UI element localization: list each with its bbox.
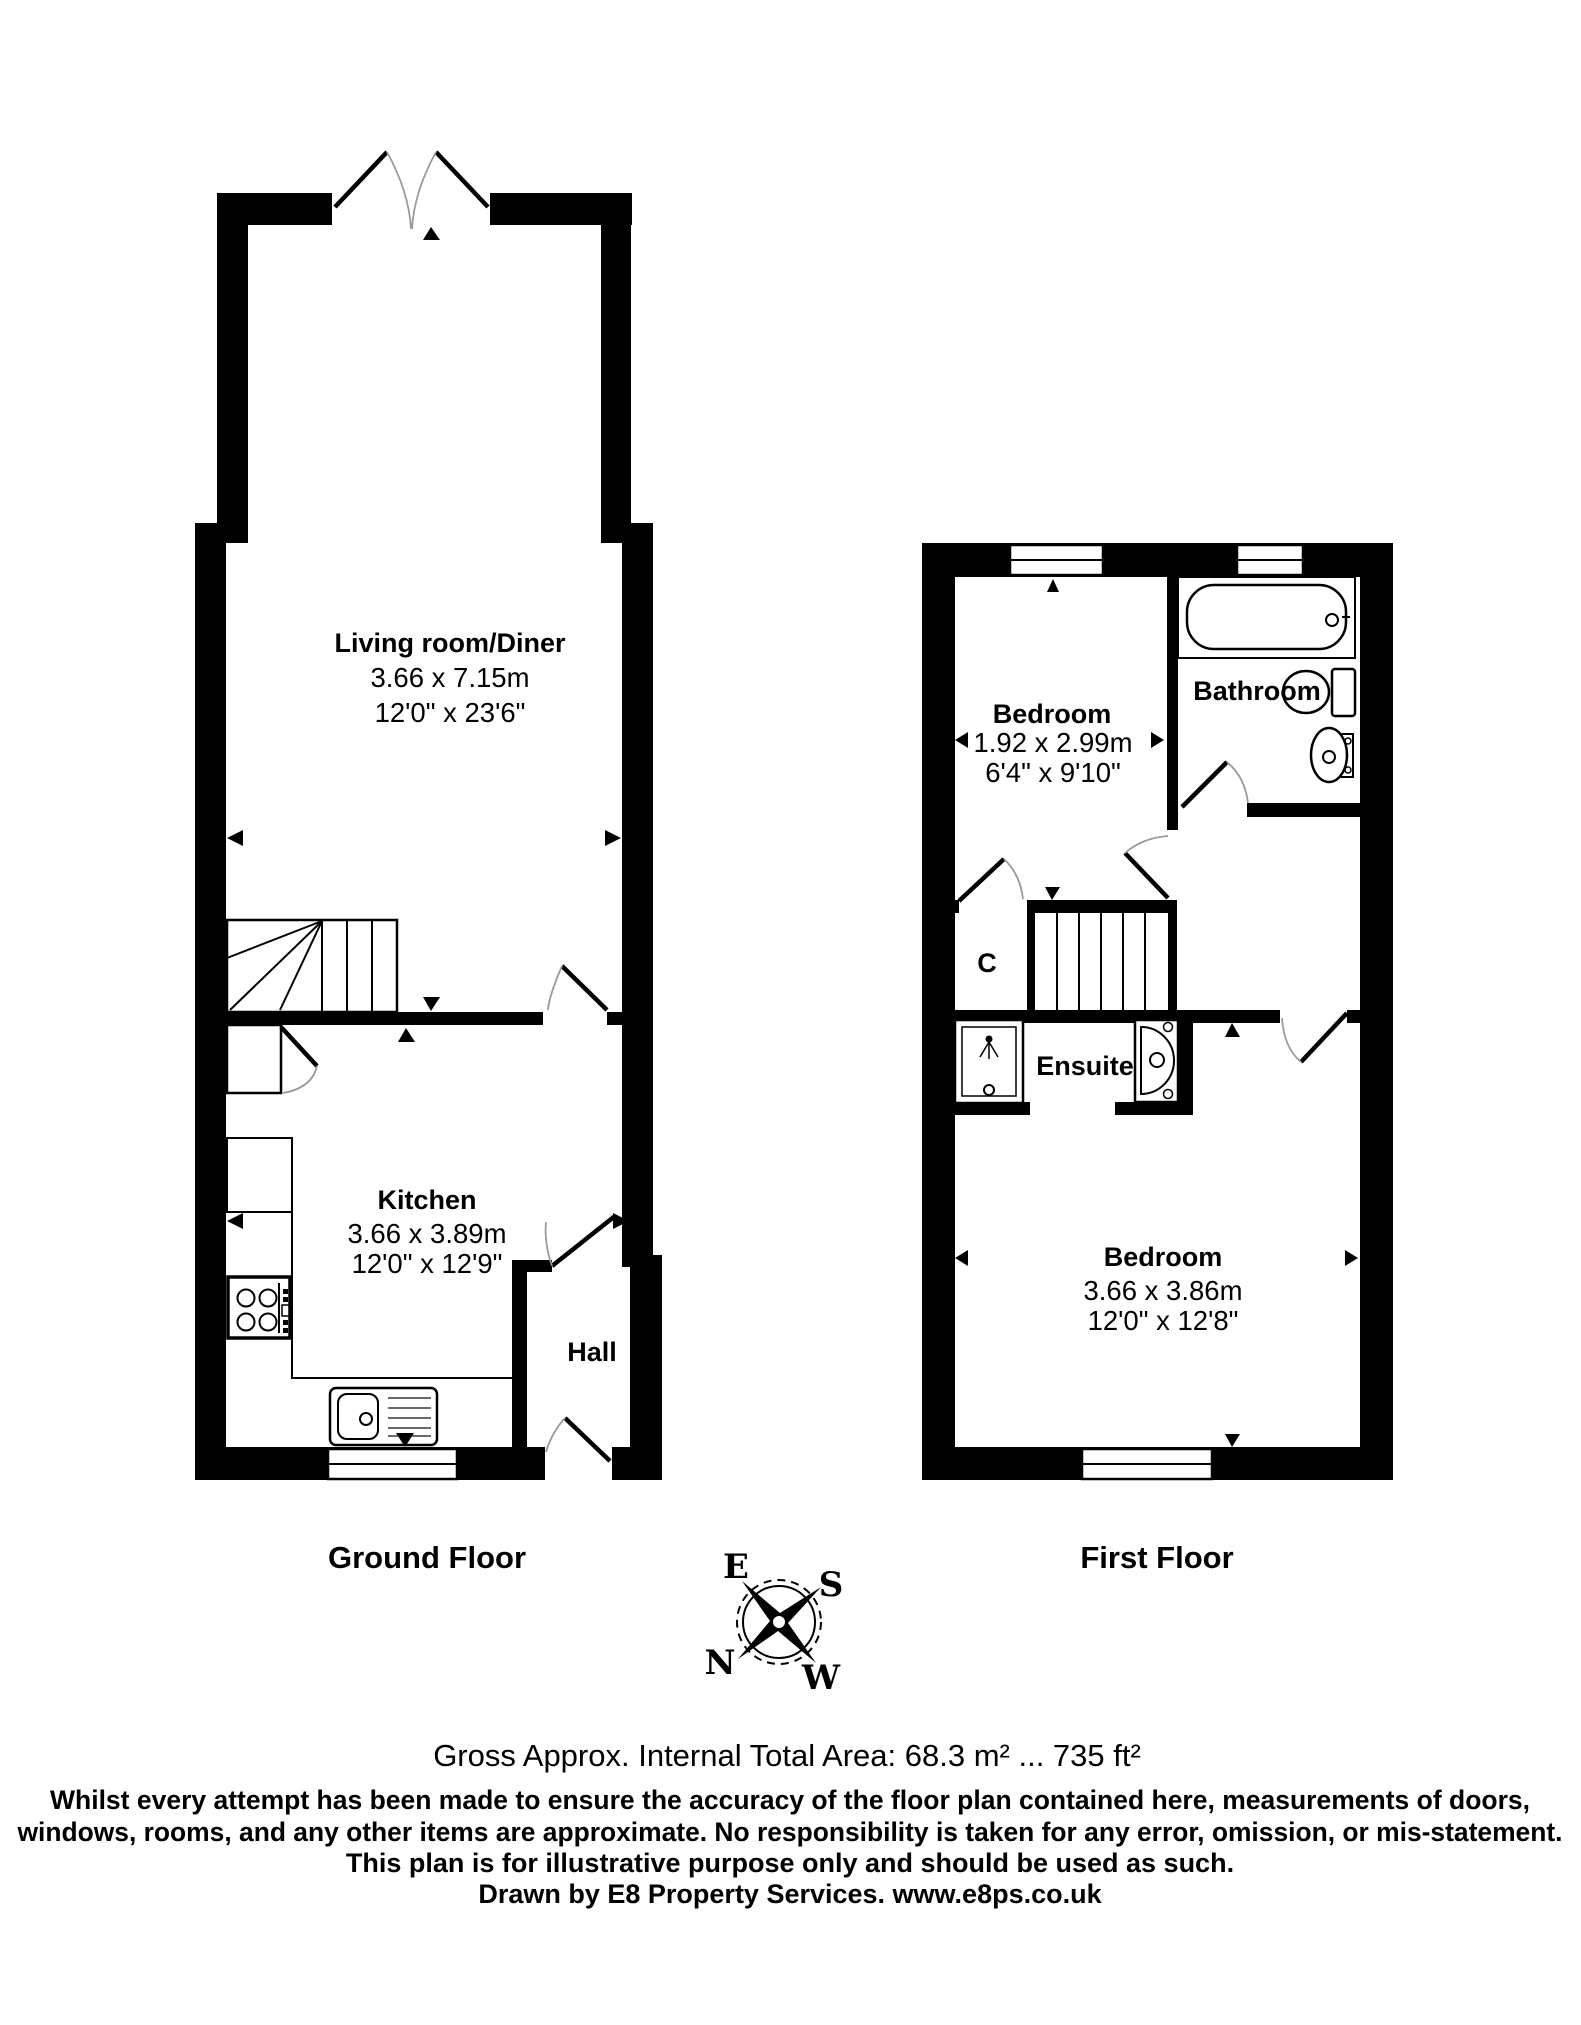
bathroom-label: Bathroom <box>1193 676 1321 706</box>
bathtub-icon <box>1178 577 1355 658</box>
cupboard-door-icon <box>959 859 1023 901</box>
first-floor-plan: Bedroom 1.92 x 2.99m 6'4" x 9'10" Bathro… <box>922 543 1393 1575</box>
bedroom-front-imperial: 6'4" x 9'10" <box>985 757 1121 788</box>
compass-east-label: E <box>723 1547 749 1587</box>
bathroom-door-icon <box>1182 762 1248 807</box>
bedroom-main-imperial: 12'0" x 12'8" <box>1088 1305 1239 1336</box>
bedroom-front-window-icon <box>1010 545 1103 575</box>
kitchen-window-icon <box>328 1449 457 1479</box>
living-room-metric: 3.66 x 7.15m <box>371 662 530 693</box>
credit-line: Drawn by E8 Property Services. www.e8ps.… <box>478 1879 1102 1909</box>
bedroom-main-arrow-left-icon <box>955 1250 968 1266</box>
bedroom-main-door-icon <box>1282 1013 1347 1062</box>
bedroom-main-window-icon <box>1082 1449 1212 1479</box>
ensuite-sink-icon <box>1135 1020 1178 1102</box>
disclaimer-line-1: Whilst every attempt has been made to en… <box>50 1785 1530 1815</box>
stairs-marker-down-icon <box>423 997 440 1011</box>
opening-marker-up-icon <box>423 227 440 240</box>
ground-floor-title: Ground Floor <box>328 1540 526 1575</box>
bedroom-main-metric: 3.66 x 3.86m <box>1084 1275 1243 1306</box>
kitchen-door-icon <box>548 966 607 1010</box>
total-area-text: Gross Approx. Internal Total Area: 68.3 … <box>433 1738 1141 1773</box>
ensuite-label: Ensuite <box>1036 1051 1134 1081</box>
upper-stairs-marker-icon <box>1045 887 1060 900</box>
compass-north-label: N <box>704 1643 735 1683</box>
cupboard-label: C <box>977 948 997 978</box>
bedroom-front-window-marker-icon <box>1047 579 1059 592</box>
bathroom-window-icon <box>1237 545 1303 575</box>
bedroom-front-metric: 1.92 x 2.99m <box>974 727 1133 758</box>
staircase-icon <box>227 920 397 1012</box>
kitchen-sink-icon <box>330 1388 437 1445</box>
first-floor-title: First Floor <box>1080 1540 1233 1575</box>
living-room-imperial: 12'0" x 23'6" <box>375 697 526 728</box>
compass-south-label: S <box>819 1565 844 1605</box>
compass-rose-icon: E S N W <box>704 1547 843 1698</box>
kitchen-arrow-left-icon <box>227 1213 243 1229</box>
floorplan-page: Living room/Diner 3.66 x 7.15m 12'0" x 2… <box>0 0 1581 2025</box>
living-arrow-right-icon <box>605 830 621 846</box>
landing-marker-icon <box>1225 1023 1240 1037</box>
bedroom-front-label: Bedroom <box>993 699 1112 729</box>
kitchen-label: Kitchen <box>377 1185 476 1215</box>
ground-floor-plan: Living room/Diner 3.66 x 7.15m 12'0" x 2… <box>195 152 662 1575</box>
hob-icon <box>228 1277 290 1338</box>
stairs-marker-up-icon <box>398 1028 415 1042</box>
french-doors-icon <box>335 152 488 229</box>
hall-door-icon <box>546 1216 615 1266</box>
bedroom-front-arrow-left-icon <box>955 732 968 748</box>
kitchen-imperial: 12'0" x 12'9" <box>352 1248 503 1279</box>
floorplan-drawing: Living room/Diner 3.66 x 7.15m 12'0" x 2… <box>0 0 1581 2025</box>
footer: Gross Approx. Internal Total Area: 68.3 … <box>17 1738 1563 1909</box>
hall-label: Hall <box>567 1337 617 1367</box>
bathroom-sink-icon <box>1311 728 1353 782</box>
bedroom-main-window-marker-icon <box>1225 1434 1240 1447</box>
living-room-label: Living room/Diner <box>334 628 566 658</box>
shower-icon <box>955 1020 1023 1103</box>
bedroom-main-label: Bedroom <box>1104 1242 1223 1272</box>
living-arrow-left-icon <box>227 830 243 846</box>
kitchen-metric: 3.66 x 3.89m <box>348 1218 507 1249</box>
bedroom-front-arrow-right-icon <box>1151 732 1164 748</box>
disclaimer-line-3: This plan is for illustrative purpose on… <box>346 1848 1234 1878</box>
bedroom-front-door-icon <box>1125 836 1168 898</box>
understairs-cupboard-icon <box>227 1025 317 1093</box>
upper-staircase-icon <box>1035 913 1168 1010</box>
bedroom-main-arrow-right-icon <box>1345 1250 1358 1266</box>
compass-west-label: W <box>801 1658 841 1698</box>
disclaimer-line-2: windows, rooms, and any other items are … <box>17 1817 1563 1847</box>
